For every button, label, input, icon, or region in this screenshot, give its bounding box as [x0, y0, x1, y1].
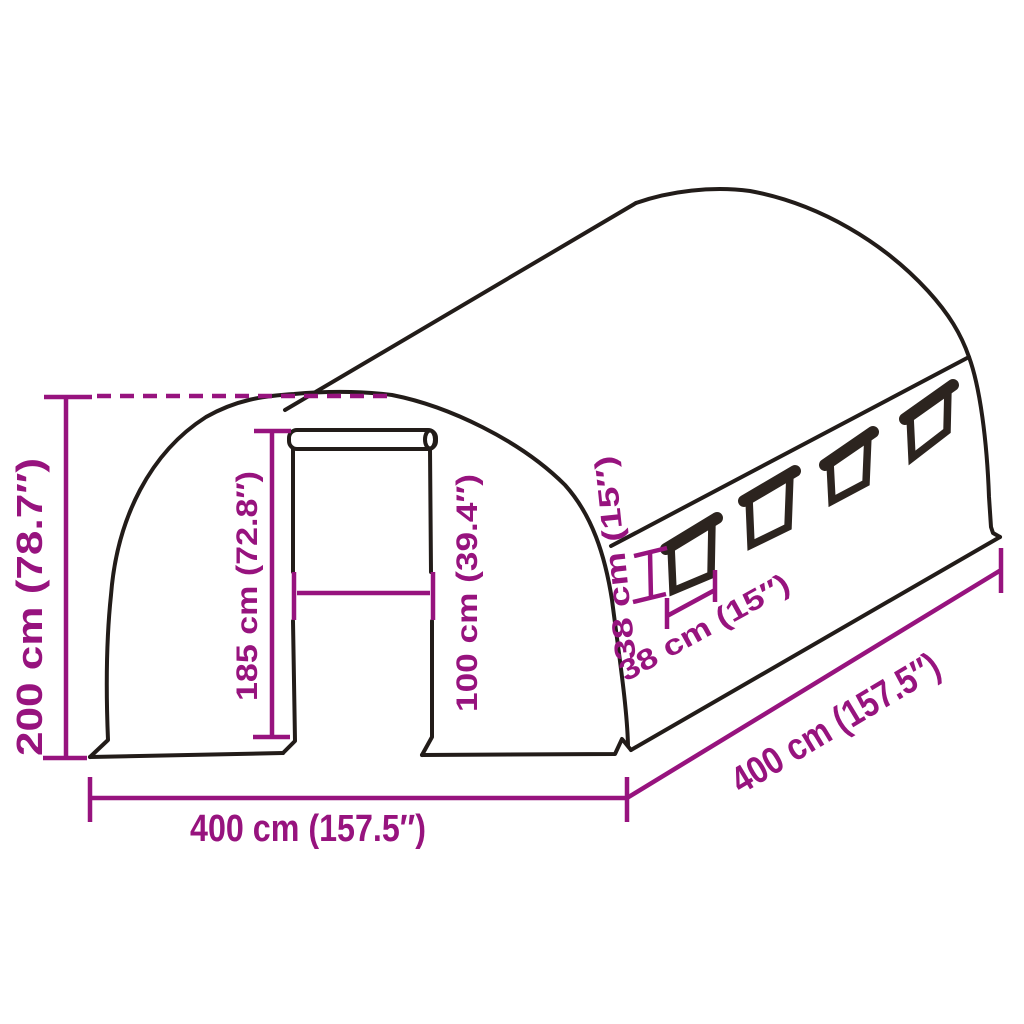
roof-ridge-line	[285, 203, 636, 410]
door-height-label: 185 cm (72.8″)	[231, 471, 264, 701]
door-right-edge	[422, 449, 432, 755]
window-1	[666, 518, 717, 591]
overall-width-label: 400 cm (157.5″)	[190, 808, 426, 850]
door-width-label: 100 cm (39.4″)	[451, 474, 484, 712]
door-roll-bar	[289, 430, 436, 449]
product-dimension-diagram: 200 cm (78.7″) 185 cm (72.8″) 100 cm (39…	[0, 0, 1024, 1024]
front-ground-right	[422, 739, 631, 755]
roll-bar-end-cap	[425, 431, 435, 449]
window-2	[744, 471, 795, 545]
door-height-dimension: 185 cm (72.8″)	[231, 431, 291, 737]
roll-bar	[289, 430, 436, 449]
door-width-dimension: 100 cm (39.4″)	[294, 474, 484, 712]
overall-height-label: 200 cm (78.7″)	[9, 458, 50, 756]
windows	[666, 385, 953, 591]
window-4	[905, 385, 953, 458]
window-height-dimension: 38 cm (15″)	[589, 454, 667, 661]
greenhouse-dimension-drawing: 200 cm (78.7″) 185 cm (72.8″) 100 cm (39…	[0, 0, 1024, 1024]
rear-arch	[636, 189, 1000, 537]
window-3	[825, 432, 873, 501]
front-ground-left	[90, 753, 283, 757]
width-dimension: 400 cm (157.5″)	[90, 777, 627, 850]
